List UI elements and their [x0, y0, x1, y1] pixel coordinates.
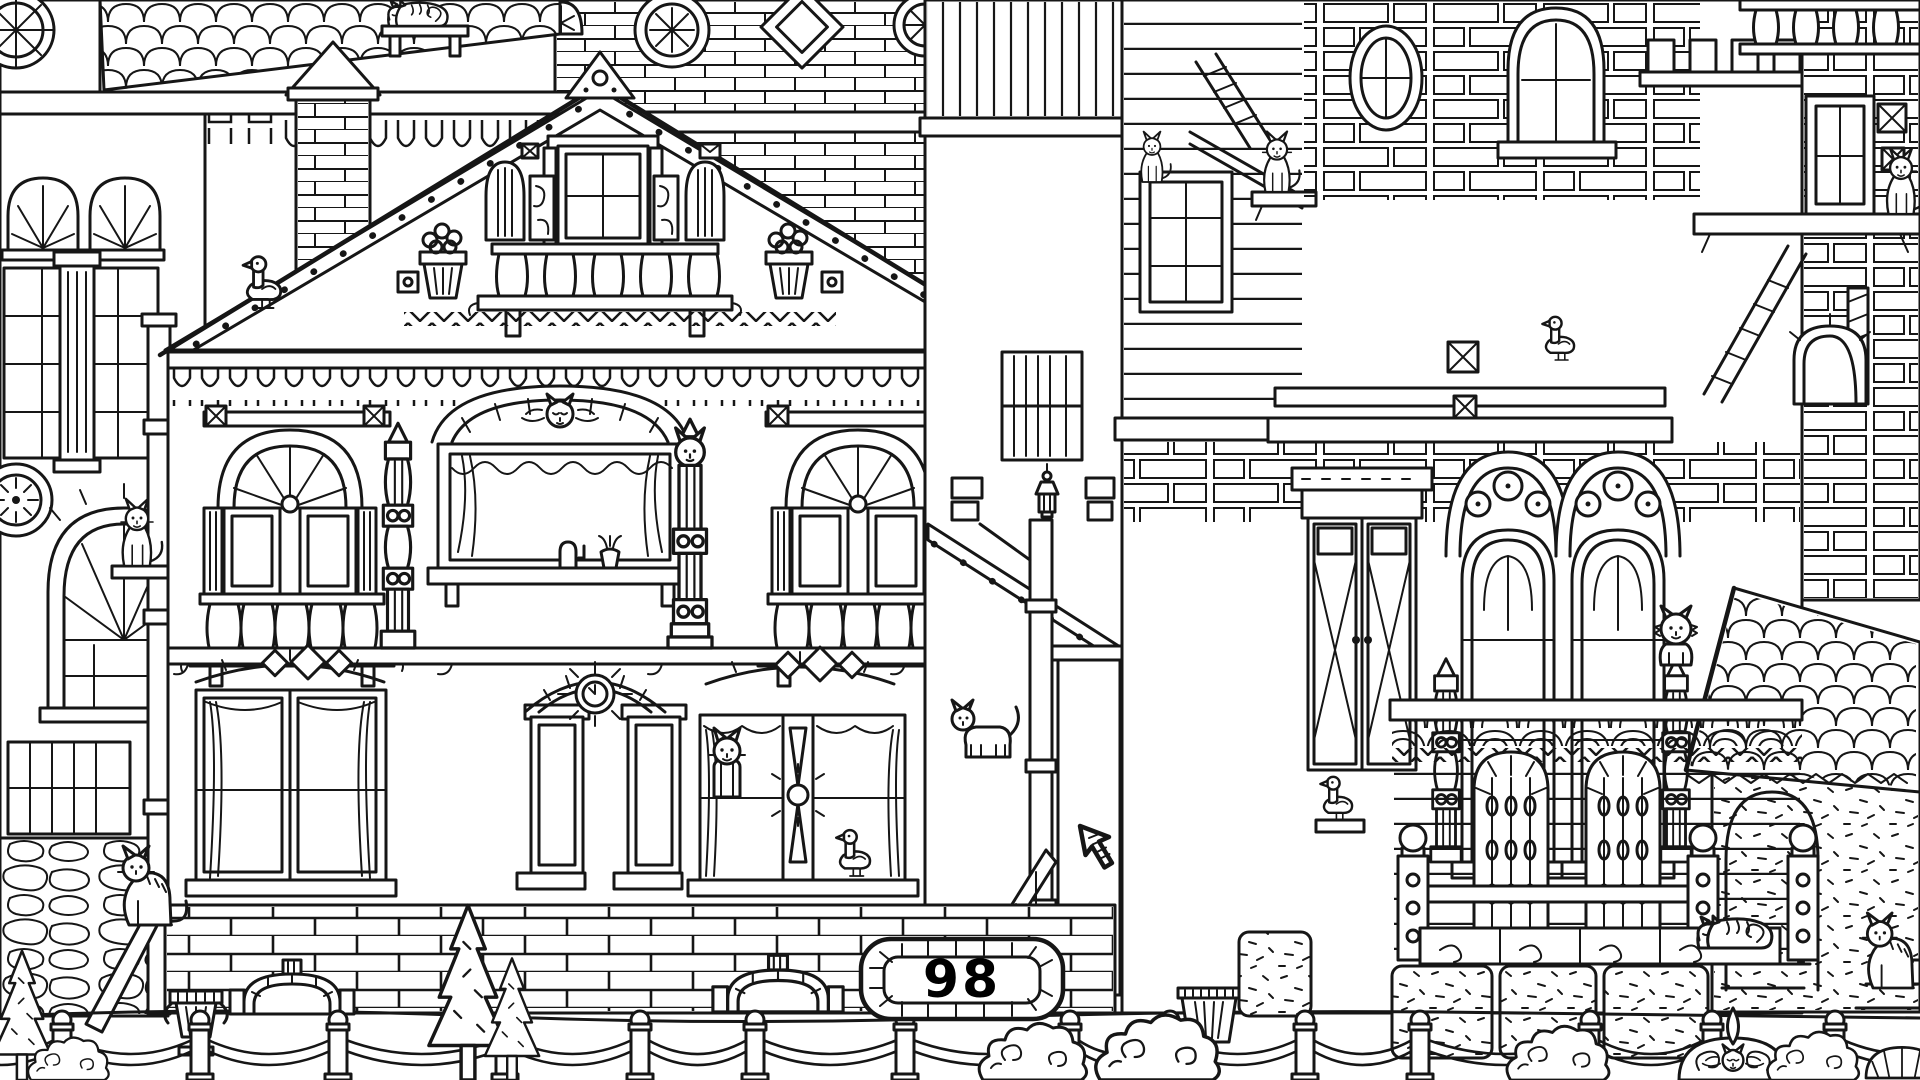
- hidden-cats-scene[interactable]: 98: [0, 0, 1920, 1080]
- cat-carved-column[interactable]: [668, 419, 712, 648]
- cat-counter: 98: [861, 939, 1063, 1019]
- fence-post: [1407, 1011, 1433, 1080]
- bush-far-right: [1768, 1032, 1859, 1080]
- alley-building: [920, 0, 1128, 1016]
- game-stage: 98: [0, 0, 1920, 1080]
- bush-center-right: [1096, 1015, 1220, 1080]
- fence-post: [325, 1011, 351, 1080]
- counter-value: 98: [923, 950, 1001, 1010]
- striped-dome-ornament: [1866, 1047, 1920, 1078]
- fence-post: [892, 1011, 918, 1080]
- fence-post: [1292, 1011, 1318, 1080]
- fence-post: [742, 1011, 768, 1080]
- fence-post: [627, 1011, 653, 1080]
- speckled-stone-block: [1239, 932, 1311, 1016]
- fence-post: [187, 1011, 213, 1080]
- carved-column: [381, 423, 415, 648]
- bush-center-left: [979, 1023, 1086, 1080]
